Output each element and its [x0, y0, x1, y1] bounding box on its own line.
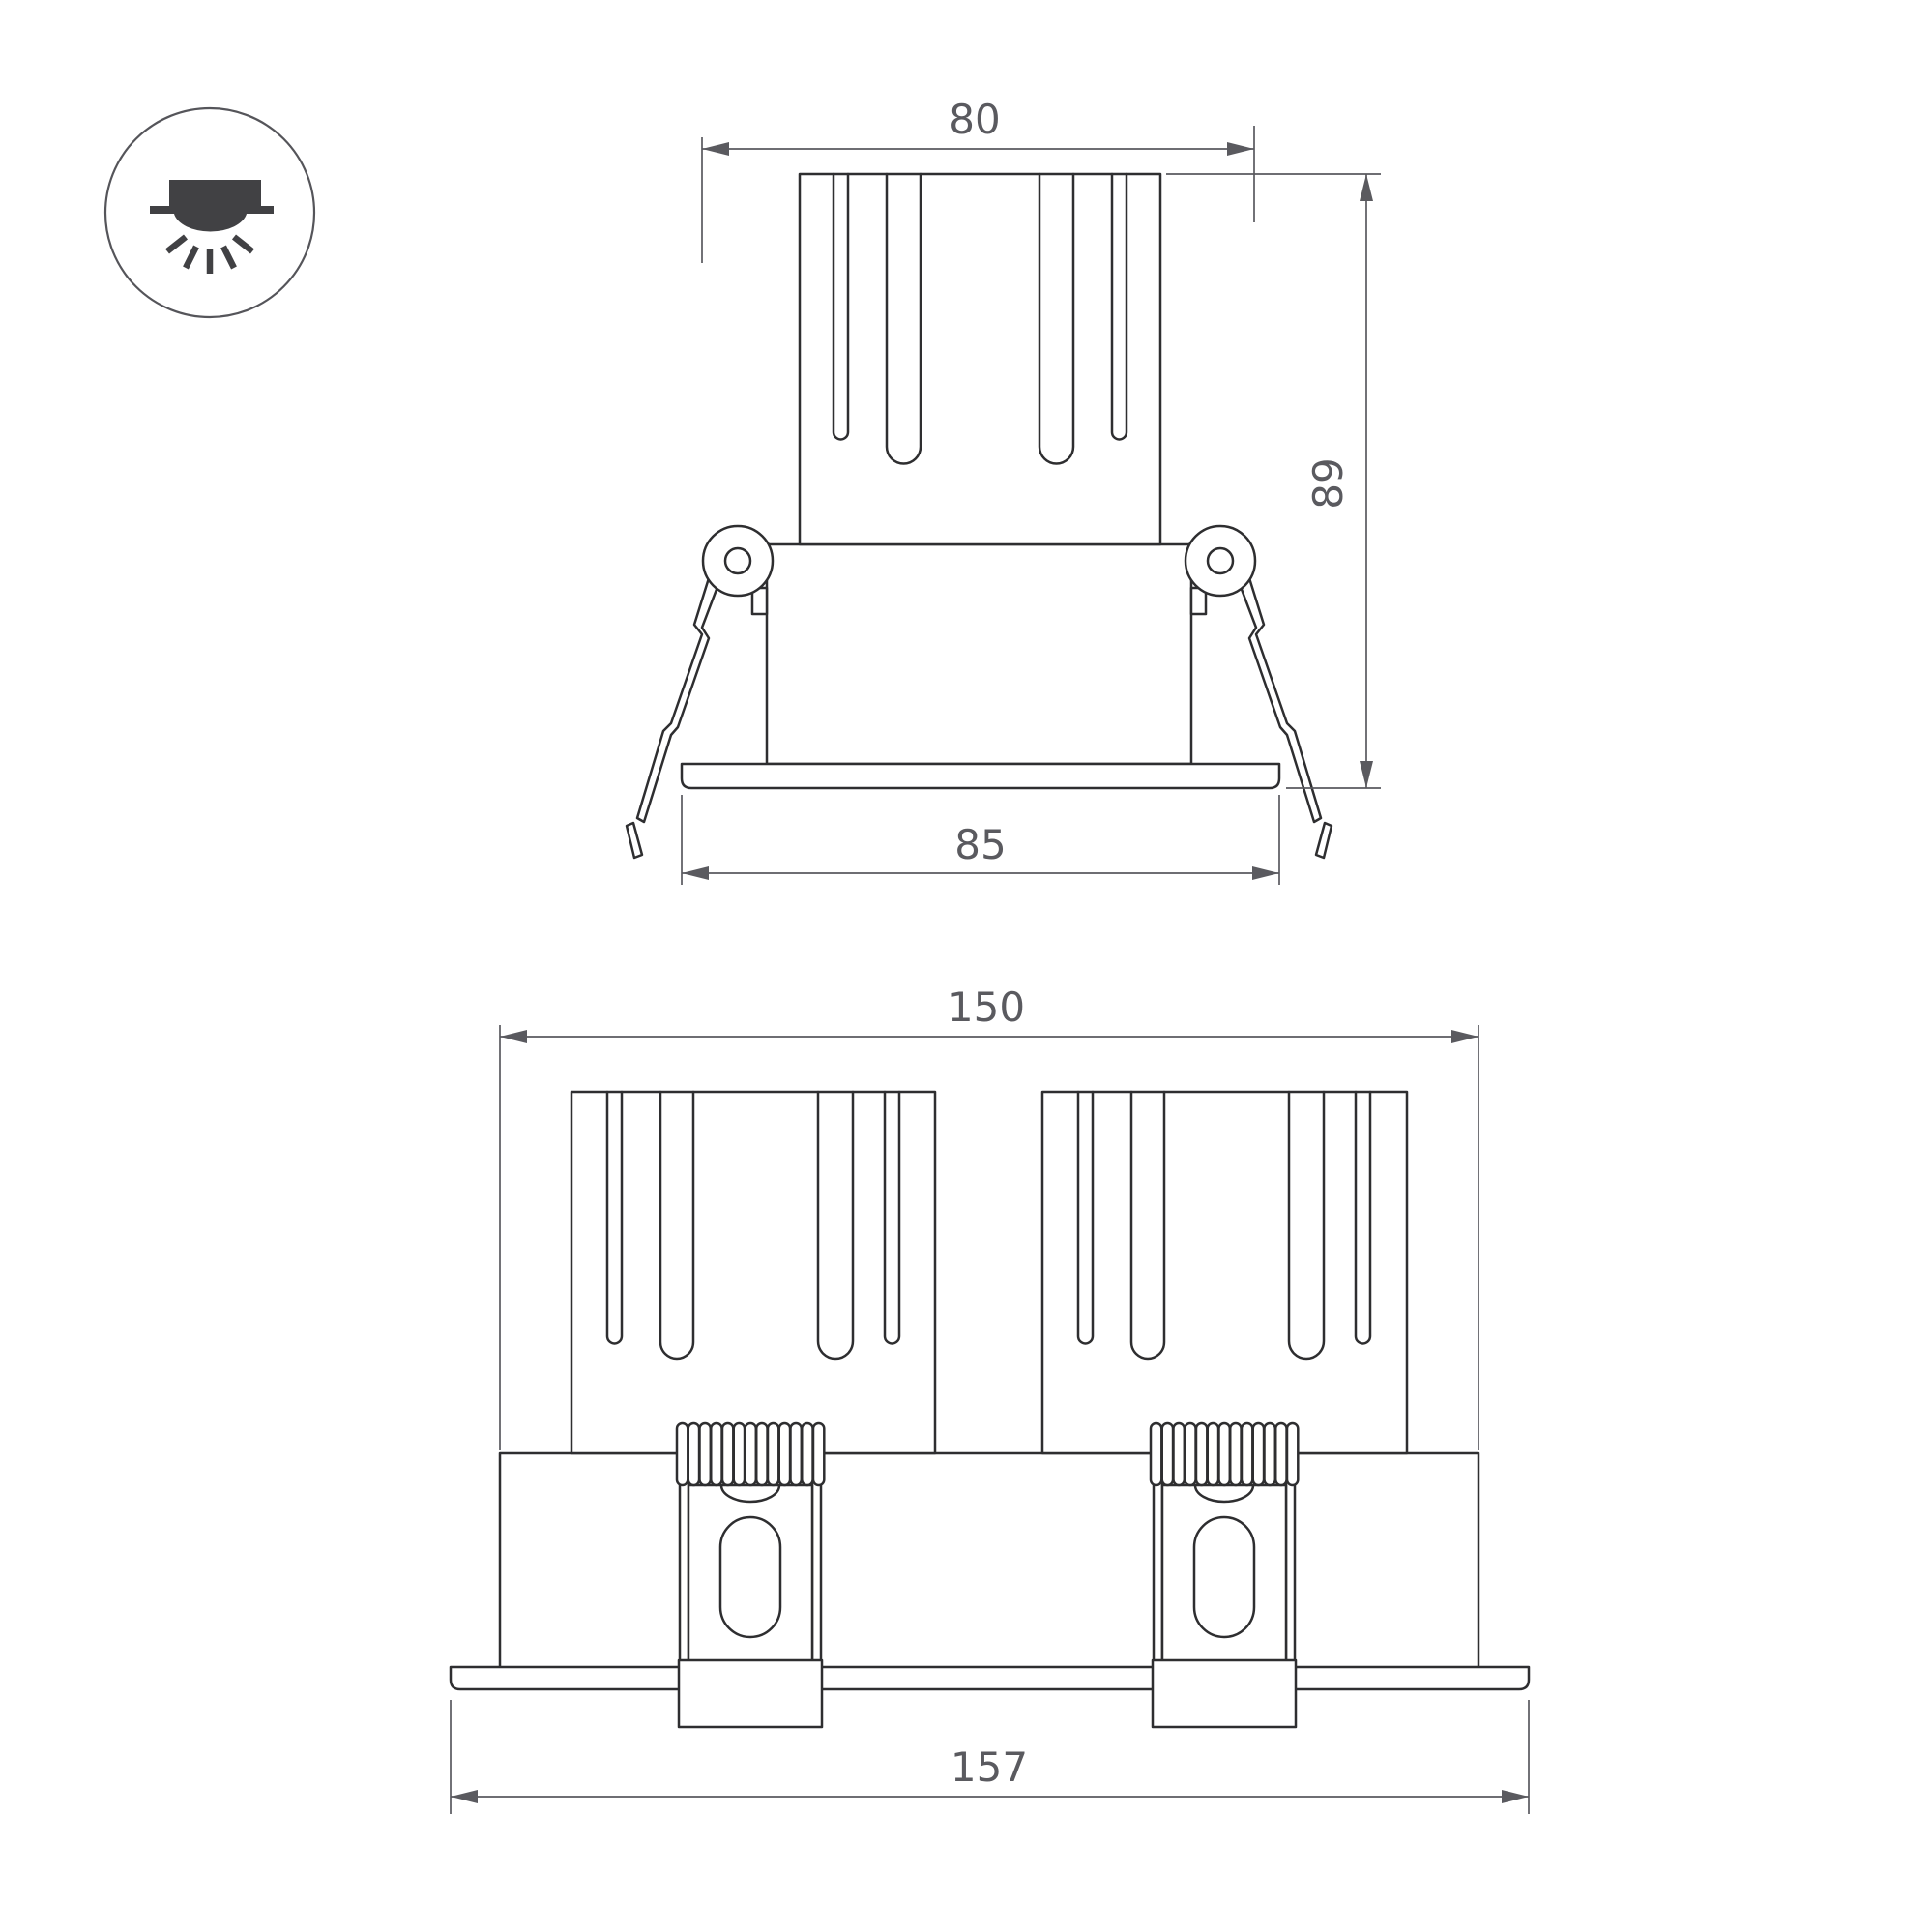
- spring-tip-right: [1316, 823, 1332, 858]
- icon-light-rays: [167, 237, 252, 274]
- icon-flange: [150, 206, 274, 214]
- dimension-top-width-label: 80: [949, 96, 1000, 143]
- dimension-double-flange-width-label: 157: [951, 1743, 1028, 1791]
- double-module-view: [451, 1092, 1529, 1727]
- icon-dome: [174, 214, 247, 231]
- clip-pivot-hole-right: [1208, 548, 1233, 573]
- bracket-foot: [679, 1660, 822, 1727]
- recessed-downlight-icon: [105, 108, 314, 317]
- technical-drawing: 80 89 85: [0, 0, 1932, 1932]
- clip-pivot-hole-left: [725, 548, 750, 573]
- dimension-height-label: 89: [1304, 457, 1352, 509]
- bracket-plate: [1162, 1485, 1286, 1661]
- double-housing-body: [500, 1453, 1478, 1670]
- drawing-page: 80 89 85: [0, 0, 1932, 1932]
- coil-spring: [677, 1423, 824, 1485]
- clip-bracket-right: [1151, 1423, 1298, 1727]
- dimension-flange-width: 85: [682, 795, 1279, 885]
- housing-body: [767, 544, 1191, 764]
- dimension-overall-width-label: 150: [948, 983, 1025, 1031]
- heatsink: [800, 174, 1160, 544]
- single-module-view: [627, 174, 1332, 858]
- dimension-double-flange-width: 157: [451, 1700, 1529, 1814]
- heatsink-right: [1042, 1092, 1407, 1453]
- spring-tip-left: [627, 823, 642, 858]
- icon-housing: [169, 180, 261, 207]
- trim-flange: [682, 764, 1279, 788]
- dimension-flange-width-label: 85: [954, 821, 1006, 868]
- bracket-plate: [688, 1485, 812, 1661]
- bracket-foot: [1153, 1660, 1296, 1727]
- clip-bracket-left: [677, 1423, 824, 1727]
- heatsink-left: [571, 1092, 935, 1453]
- double-trim-flange: [451, 1667, 1529, 1689]
- coil-spring: [1151, 1423, 1298, 1485]
